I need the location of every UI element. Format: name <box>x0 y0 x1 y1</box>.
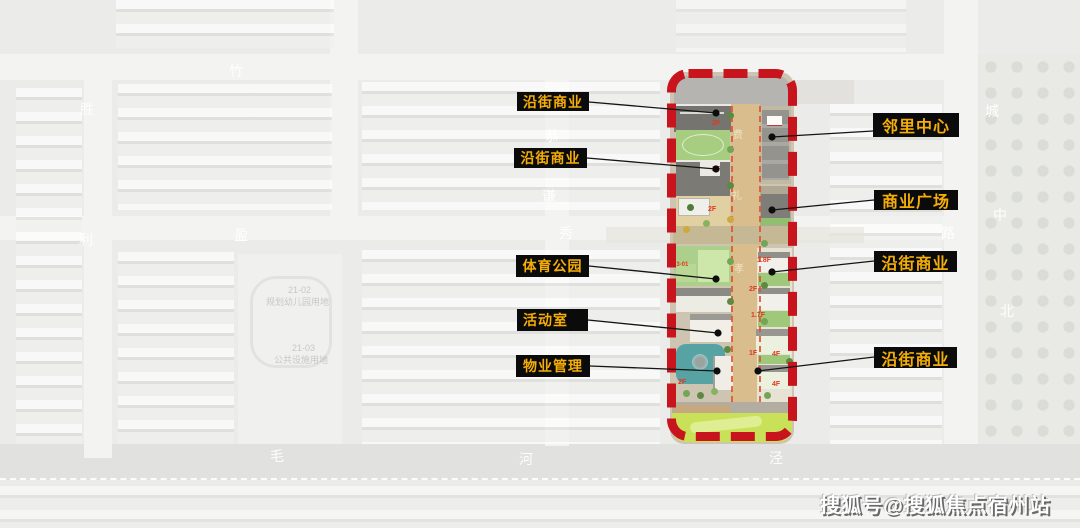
bg-river-name: 毛 <box>270 449 284 463</box>
tree-icon <box>703 220 710 227</box>
strip-central-road <box>731 104 760 406</box>
bg-housing-cluster <box>362 250 660 444</box>
plaza-b-hedge <box>761 218 790 225</box>
courtyard-building <box>678 198 710 216</box>
tree-icon <box>727 298 734 305</box>
bg-road-name: 路 <box>941 226 955 240</box>
residential-building-2 <box>758 288 790 310</box>
bg-parcel-note: 公共设施用地 <box>274 356 328 365</box>
street-char: 费 <box>733 131 743 141</box>
callout-street-commercial-1: 沿街商业 <box>517 92 589 111</box>
callout-neighborhood-center: 邻里中心 <box>873 113 959 137</box>
bg-river-dashed-line <box>0 478 1080 480</box>
bg-river <box>0 444 1080 480</box>
bg-road-name: 恭 <box>545 129 559 143</box>
callout-commercial-plaza: 商业广场 <box>874 190 958 210</box>
bg-housing-cluster <box>118 252 234 444</box>
activity-room-building <box>690 314 732 342</box>
tree-icon <box>761 240 768 247</box>
bg-road-vertical-3 <box>944 0 978 444</box>
floor-label: 4F <box>772 381 780 388</box>
tree-icon <box>727 182 734 189</box>
bg-road-name: 秀 <box>559 226 573 240</box>
bg-road-name: 城 <box>985 104 999 118</box>
bg-housing-cluster <box>118 84 332 210</box>
callout-property-management: 物业管理 <box>516 355 590 377</box>
tree-icon <box>727 146 734 153</box>
tree-icon <box>727 258 734 265</box>
floor-label: 2F <box>712 166 720 173</box>
bg-housing-cluster <box>362 82 660 210</box>
property-building <box>713 356 733 390</box>
pond-fountain <box>692 354 708 370</box>
tree-icon <box>683 226 690 233</box>
bg-road-name: 谦 <box>542 189 556 203</box>
bg-housing-cluster <box>676 0 906 52</box>
bg-parcel-note: 21-03 <box>292 344 315 353</box>
sports-park-court <box>698 250 729 282</box>
floor-label: 1F <box>749 350 757 357</box>
floor-label: 2F <box>712 120 720 127</box>
sohu-watermark: 搜狐号@搜狐焦点宿州站 <box>820 489 1051 518</box>
callout-activity-room: 活动室 <box>517 309 588 331</box>
callout-sports-park: 体育公园 <box>516 255 589 277</box>
floor-label: 2F <box>749 286 757 293</box>
fire-lane-dashed-line <box>759 106 761 402</box>
bg-road-horizontal-top <box>0 54 1080 80</box>
bg-road-stub-right <box>794 227 864 243</box>
street-char: 孝 <box>734 265 744 275</box>
tree-icon <box>764 392 771 399</box>
bg-road-name: 竹 <box>229 64 243 78</box>
site-plan-image: 竹 胜 利 盈 恭 谦 秀 路 城 中 北 毛 河 泾 21-02 规划幼儿园用… <box>0 0 1080 528</box>
callout-street-commercial-3: 沿街商业 <box>874 251 957 272</box>
floor-label: 2F <box>678 379 686 386</box>
bg-road-stub-left <box>606 227 670 243</box>
bg-river-name: 河 <box>519 452 533 466</box>
commercial-building-a <box>674 104 731 132</box>
tree-icon <box>761 282 768 289</box>
bg-road-vertical-2 <box>330 0 358 220</box>
plaza-b-building <box>761 194 790 218</box>
bg-housing-cluster <box>16 88 82 444</box>
floor-label: 1.7F <box>751 312 765 319</box>
tree-icon <box>687 204 694 211</box>
bg-parcel-note: 规划幼儿园用地 <box>266 298 329 307</box>
bg-road-name: 胜 <box>80 102 94 116</box>
parcel-number-label: 23-01 <box>673 262 688 268</box>
bg-road-name: 北 <box>1000 304 1014 318</box>
tree-icon <box>761 318 768 325</box>
callout-street-commercial-4: 沿街商业 <box>874 347 957 368</box>
tree-icon <box>724 346 731 353</box>
tree-icon <box>727 112 734 119</box>
bg-parcel-note: 21-02 <box>288 286 311 295</box>
floor-label: 1.8F <box>757 257 771 264</box>
tree-icon <box>697 392 704 399</box>
neighborhood-center-sign <box>767 116 782 126</box>
tree-icon <box>786 358 793 365</box>
bg-road-stub-top <box>794 80 854 104</box>
lawn-a-path <box>682 134 724 156</box>
bg-housing-cluster <box>830 104 942 444</box>
bg-road-name: 盈 <box>234 228 248 242</box>
tree-icon <box>711 388 718 395</box>
bg-road-name: 利 <box>79 233 93 247</box>
floor-label: 2F <box>708 206 716 213</box>
tree-icon <box>683 390 690 397</box>
tree-icon <box>727 216 734 223</box>
commercial-building-a-roof <box>680 112 724 114</box>
floor-label: 4F <box>772 351 780 358</box>
bg-road-name: 中 <box>993 208 1007 222</box>
bg-housing-cluster <box>116 0 334 48</box>
callout-street-commercial-2: 沿街商业 <box>514 148 587 168</box>
building-e <box>676 288 731 312</box>
street-char: 礼 <box>732 192 742 202</box>
bg-river-name: 泾 <box>769 451 783 465</box>
